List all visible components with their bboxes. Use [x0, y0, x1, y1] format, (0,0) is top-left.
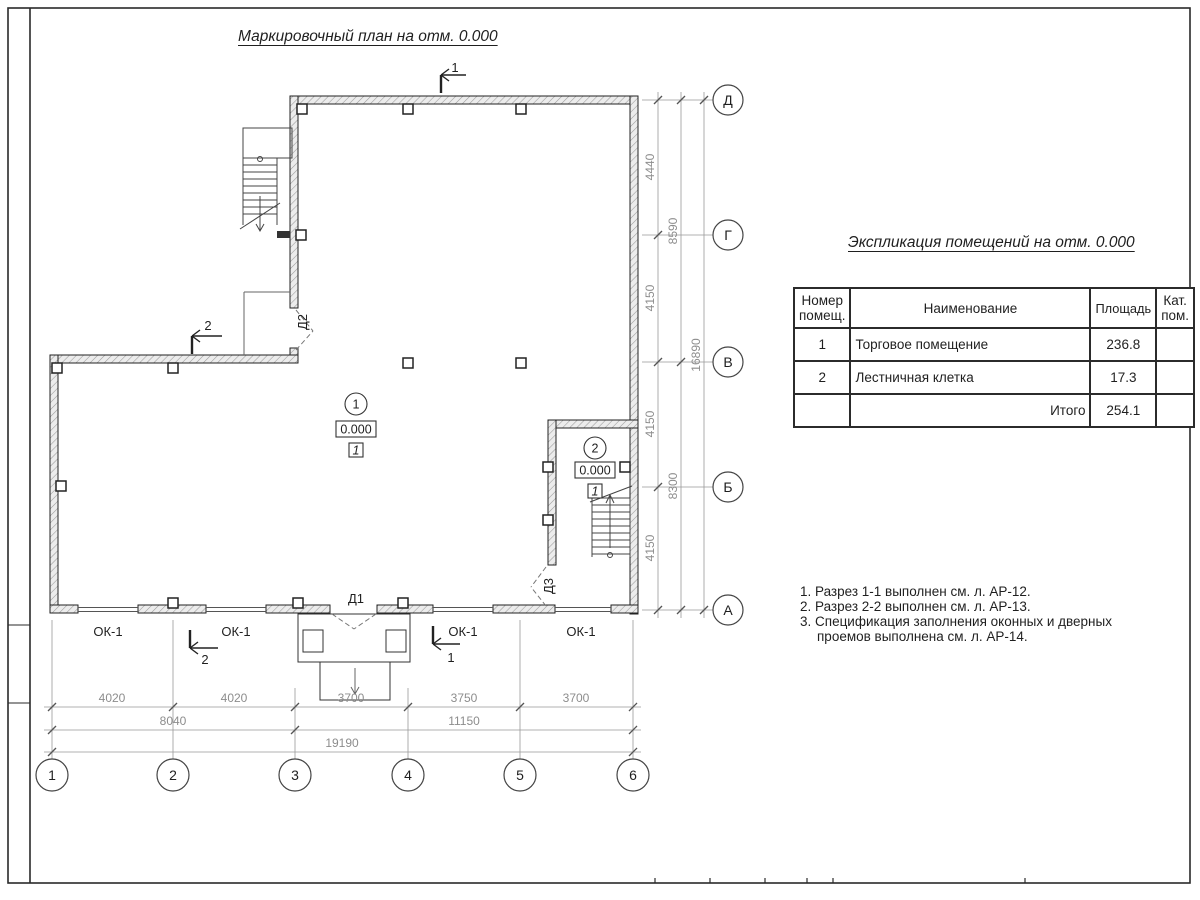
explication-table: Номер помещ. Наименование Площадь Кат. п…	[793, 287, 1195, 428]
axis-label: 2	[169, 767, 177, 783]
door-label-d3: Д3	[541, 578, 556, 594]
room-number: 1	[353, 398, 360, 412]
col-header-name: Наименование	[850, 288, 1090, 328]
note-line: 1. Разрез 1-1 выполнен см. л. АР-12.	[800, 584, 1112, 599]
dim-label: 8300	[666, 472, 680, 499]
dim-label: 4440	[643, 153, 657, 180]
axis-label: А	[723, 602, 733, 618]
dim-label: 11150	[448, 714, 480, 728]
dim-label: 8040	[160, 714, 187, 728]
explication-title: Экспликация помещений на отм. 0.000	[848, 234, 1135, 252]
cell-name: Лестничная клетка	[850, 361, 1090, 394]
total-label: Итого	[850, 394, 1090, 427]
drawing-sheet: 1 1 2 2 4440 4150 4150	[0, 0, 1200, 900]
cell-cat	[1156, 361, 1194, 394]
dim-label: 3700	[563, 691, 590, 705]
tambour-outline	[244, 292, 290, 355]
notes-block: 1. Разрез 1-1 выполнен см. л. АР-12. 2. …	[800, 584, 1112, 644]
axis-label: 1	[48, 767, 56, 783]
axis-label: В	[723, 354, 732, 370]
cell-area: 236.8	[1090, 328, 1156, 361]
dim-label: 19190	[325, 736, 359, 750]
room-marker-2: 2 0.000 1	[575, 437, 615, 499]
table-total-row: Итого 254.1	[794, 394, 1194, 427]
axis-label: 6	[629, 767, 637, 783]
note-line: 3. Спецификация заполнения оконных и две…	[800, 614, 1112, 629]
axis-bubbles-right: Д Г В Б А	[713, 85, 743, 625]
dim-label: 8590	[666, 217, 680, 244]
axis-bubbles-bottom: 1 2 3 4 5 6	[36, 759, 649, 791]
cell-area: 17.3	[1090, 361, 1156, 394]
note-line: 2. Разрез 2-2 выполнен см. л. АР-13.	[800, 599, 1112, 614]
room-level: 0.000	[340, 423, 371, 437]
col-header-cat: Кат. пом.	[1156, 288, 1194, 328]
room-level: 0.000	[579, 464, 610, 478]
cell-num: 2	[794, 361, 850, 394]
dim-label: 4150	[643, 534, 657, 561]
dim-label: 3750	[451, 691, 478, 705]
stair-external	[240, 128, 292, 238]
dim-label: 16890	[689, 338, 703, 372]
door-swings	[296, 310, 546, 629]
axis-label: 5	[516, 767, 524, 783]
dim-label: 3700	[338, 691, 365, 705]
total-value: 254.1	[1090, 394, 1156, 427]
window-label: ОК-1	[93, 624, 122, 639]
cell-empty	[794, 394, 850, 427]
section-2-label-top: 2	[204, 318, 211, 333]
window-label: ОК-1	[448, 624, 477, 639]
section-1-label-bottom: 1	[447, 650, 454, 665]
dim-label: 4150	[643, 410, 657, 437]
cell-name: Торговое помещение	[850, 328, 1090, 361]
entrance-porch	[298, 614, 410, 700]
floor-plan-canvas: 1 1 2 2 4440 4150 4150	[0, 0, 1200, 900]
dimensions-right: 4440 4150 4150 4150 8590 8300 16890	[642, 92, 713, 618]
cell-num: 1	[794, 328, 850, 361]
axis-label: Д	[723, 92, 733, 108]
door-label-d1: Д1	[348, 591, 364, 606]
window-label: ОК-1	[566, 624, 595, 639]
room-marker-1: 1 0.000 1	[336, 393, 376, 458]
note-line: проемов выполнена см. л. АР-14.	[817, 629, 1112, 644]
axis-label: Г	[724, 227, 732, 243]
table-header-row: Номер помещ. Наименование Площадь Кат. п…	[794, 288, 1194, 328]
door-label-d2: Д2	[295, 314, 310, 330]
axis-label: Б	[723, 479, 732, 495]
section-2-label-bottom: 2	[201, 652, 208, 667]
col-header-area: Площадь	[1090, 288, 1156, 328]
dim-label: 4020	[221, 691, 248, 705]
room-number: 2	[592, 442, 599, 456]
cell-cat	[1156, 328, 1194, 361]
col-header-num: Номер помещ.	[794, 288, 850, 328]
section-mark-2-bottom	[190, 630, 218, 654]
table-row: 1 Торговое помещение 236.8	[794, 328, 1194, 361]
section-mark-2-top	[192, 330, 222, 354]
section-1-label-top: 1	[451, 60, 458, 75]
floor-type: 1	[353, 444, 360, 458]
dimensions-bottom: 4020 4020 3700 3750 3700 8040 11150 1919…	[44, 620, 641, 759]
table-row: 2 Лестничная клетка 17.3	[794, 361, 1194, 394]
floor-type: 1	[592, 485, 599, 499]
axis-label: 4	[404, 767, 412, 783]
dim-label: 4150	[643, 284, 657, 311]
plan-title: Маркировочный план на отм. 0.000	[238, 28, 498, 46]
axis-label: 3	[291, 767, 299, 783]
window-label: ОК-1	[221, 624, 250, 639]
cell-cat	[1156, 394, 1194, 427]
dim-label: 4020	[99, 691, 126, 705]
walls	[50, 96, 638, 614]
